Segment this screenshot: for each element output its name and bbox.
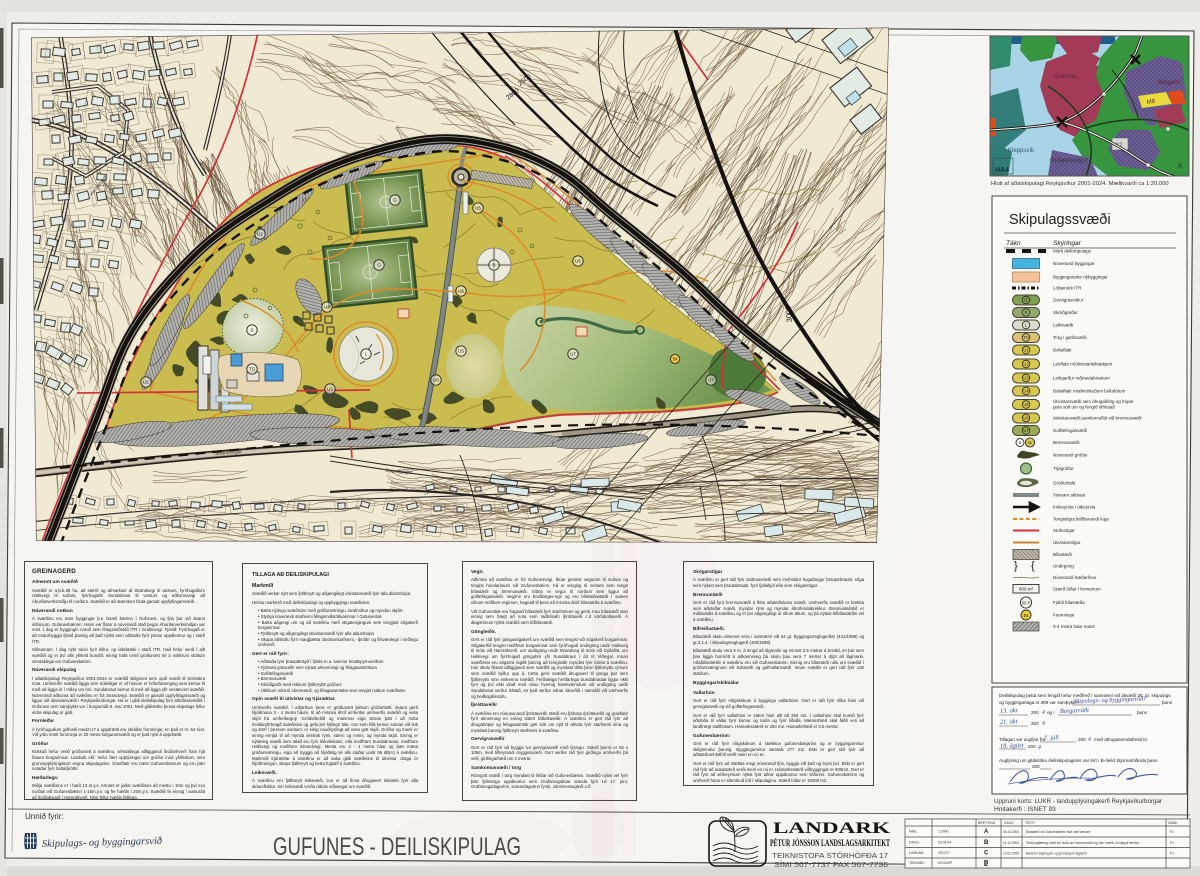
svg-text:200: 200 — [1032, 764, 1040, 769]
svg-text:B: B — [984, 840, 989, 846]
svg-text:SAMÞ: SAMÞ — [1168, 821, 1178, 825]
svg-text:Vistvæn akbraut: Vistvæn akbraut — [1053, 493, 1086, 498]
svg-text:{: { — [1031, 560, 1035, 572]
svg-text:Gufunesvegur: Gufunesvegur — [1050, 158, 1088, 164]
svg-text:G: G — [393, 198, 397, 203]
svg-text:Hluti af aðalskipulagi Reykjav: Hluti af aðalskipulagi Reykjavíkur 2001-… — [991, 180, 1169, 187]
svg-text:Útivistarstígur: Útivistarstígur — [1053, 539, 1081, 545]
svg-text:Byggingareitur nýbyggingar: Byggingareitur nýbyggingar — [1053, 275, 1108, 280]
svg-text:U2: U2 — [257, 232, 263, 237]
svg-text:}: } — [1014, 560, 1018, 572]
svg-text:U7: U7 — [1023, 428, 1029, 433]
svg-text:U5: U5 — [1023, 402, 1029, 407]
svg-text:ÞRJ/ASP: ÞRJ/ASP — [938, 861, 953, 865]
svg-text:Fjöldi bílastæða: Fjöldi bílastæða — [1053, 599, 1085, 605]
svg-text:U6: U6 — [433, 378, 439, 383]
svg-text:4: 4 — [1042, 720, 1045, 727]
svg-text:útivistarsvæði,samkomuflöt við: útivistarsvæði,samkomuflöt við brennusvæ… — [1053, 415, 1142, 421]
svg-text:VRJ,PJ: VRJ,PJ — [938, 851, 950, 855]
svg-text:Hnitakerfi : ISNET 93: Hnitakerfi : ISNET 93 — [994, 806, 1056, 813]
svg-text:A: A — [984, 829, 989, 835]
svg-text:SÍMI 567-7737 FAX 567-7736: SÍMI 567-7737 FAX 567-7736 — [774, 860, 888, 869]
svg-text:U4: U4 — [1023, 389, 1029, 394]
svg-text:3000: 3000 — [783, 305, 794, 323]
svg-text:TG: TG — [249, 367, 256, 372]
svg-text:06.10.2004: 06.10.2004 — [1003, 830, 1019, 834]
svg-text:13. okt: 13. okt — [1000, 707, 1018, 715]
svg-text:10.02.2005: 10.02.2005 — [1003, 851, 1019, 855]
svg-text:S: S — [1025, 310, 1028, 315]
svg-text:Mörk deiliskipulags: Mörk deiliskipulags — [1053, 249, 1092, 254]
svg-text:PÉTUR JÓNSSON LANDSLAGSARKITEK: PÉTUR JÓNSSON LANDSLAGSARKITEKT — [770, 837, 890, 849]
svg-text:Gróðurbelti: Gróðurbelti — [1053, 480, 1075, 486]
svg-text:4: 4 — [1088, 736, 1091, 743]
svg-text:Borgarráði: Borgarráði — [1060, 707, 1089, 715]
svg-text:200: 200 — [1078, 737, 1086, 742]
svg-text:Skrúðgarður: Skrúðgarður — [1053, 309, 1078, 315]
svg-text:Núverandi gróður: Núverandi gróður — [1053, 452, 1088, 458]
svg-text:Unnið fyrir:: Unnið fyrir: — [25, 812, 64, 821]
svg-text:DAGS: DAGS — [1004, 821, 1014, 825]
svg-text:Gervigrasvöllur: Gervigrasvöllur — [1053, 298, 1084, 303]
svg-text:Torg / garðsvæði: Torg / garðsvæði — [1053, 334, 1087, 340]
svg-text:Boltaflatir m/afmörkuðum bolta: Boltaflatir m/afmörkuðum boltafötum — [1053, 388, 1126, 394]
svg-text:Tengistígur,leiðbenandi lega: Tengistígur,leiðbenandi lega — [1053, 516, 1109, 522]
svg-text:U2: U2 — [1023, 362, 1029, 367]
svg-text:Brennusvæði: Brennusvæði — [1053, 439, 1080, 445]
svg-text:54: 54 — [1024, 613, 1029, 618]
svg-text:Skipulagssvæði: Skipulagssvæði — [1009, 212, 1111, 228]
svg-text:P.J: P.J — [1170, 841, 1175, 845]
svg-text:01.12.2004: 01.12.2004 — [1003, 841, 1019, 845]
svg-text:U3: U3 — [1023, 376, 1029, 381]
svg-text:21. okt: 21. okt — [1000, 718, 1018, 726]
svg-text:Boltaflatir: Boltaflatir — [1053, 348, 1072, 353]
svg-text:Skýringar: Skýringar — [1053, 240, 1082, 247]
svg-text:TG: TG — [1023, 335, 1029, 340]
svg-text:U6: U6 — [458, 289, 464, 294]
svg-text:Innkeyrsla / útkeyrsla: Innkeyrsla / útkeyrsla — [1053, 505, 1096, 510]
svg-text:U3: U3 — [327, 387, 333, 392]
svg-text:þann: þann — [1162, 700, 1173, 705]
svg-text:HA4: HA4 — [995, 167, 1009, 174]
svg-text:og í: og í — [1047, 710, 1055, 715]
svg-text:54: 54 — [673, 357, 678, 362]
svg-text:200: 200 — [1028, 744, 1036, 749]
svg-text:með athugasemdafresti til: með athugasemdafresti til — [1094, 736, 1147, 742]
svg-text:S: S — [250, 328, 253, 333]
svg-text:og byggingarlaga nr.399 var sa: og byggingarlaga nr.399 var samþykkt í — [999, 700, 1080, 705]
svg-text:P.J: P.J — [1170, 851, 1175, 855]
svg-text:Undirgöng: Undirgöng — [1053, 564, 1074, 569]
svg-text:TEIKNAÐ:: TEIKNAÐ: — [909, 861, 925, 865]
svg-text:4: 4 — [1038, 744, 1041, 751]
svg-text:G: G — [377, 263, 381, 268]
svg-text:4: 4 — [1042, 709, 1045, 716]
svg-text:E: E — [984, 862, 988, 868]
svg-text:U1: U1 — [1023, 348, 1029, 353]
svg-text:Bílastæði: Bílastæði — [1053, 551, 1072, 557]
svg-text:Bætt inn skýringum og greinarg: Bætt inn skýringum og greinargerð lagfær… — [1026, 850, 1087, 855]
svg-text:Leirflatir m/útivistarleiktækj: Leirflatir m/útivistarleiktækjum — [1053, 362, 1113, 367]
svg-text:Bílastæði við Gufunesbæinn flu: Bílastæði við Gufunesbæinn flutt nær bæn… — [1026, 829, 1091, 834]
svg-text:U6: U6 — [1023, 416, 1029, 421]
svg-text:þann: þann — [1137, 710, 1148, 715]
svg-text:L: L — [365, 352, 368, 357]
svg-text:G: G — [1024, 298, 1027, 303]
svg-text:18. ágúst: 18. ágúst — [1000, 742, 1024, 750]
svg-text:HANNAÐ:: HANNAÐ: — [909, 851, 924, 855]
svg-text:C: C — [984, 850, 989, 856]
svg-text:00 P: 00 P — [1022, 600, 1031, 605]
svg-text:Uppruni korts: LUKR - landuppl: Uppruni korts: LUKR - landupplýsingakerf… — [994, 798, 1163, 805]
svg-text:3-4 metra háar manir: 3-4 metra háar manir — [1053, 624, 1096, 629]
svg-text:Borgarh.: Borgarh. — [1158, 80, 1181, 86]
svg-text:TEXTI: TEXTI — [1025, 821, 1035, 825]
svg-text:M8: M8 — [1146, 99, 1156, 106]
svg-text:GUFUNES - DEILISKIPULAG: GUFUNES - DEILISKIPULAG — [273, 833, 521, 861]
svg-text:1:2000: 1:2000 — [938, 830, 948, 834]
svg-text:Golfæfingasvæði: Golfæfingasvæði — [1053, 427, 1087, 433]
svg-text:BREYTING: BREYTING — [978, 821, 996, 825]
svg-text:Fornminjar: Fornminjar — [1053, 613, 1075, 618]
svg-text:200: 200 — [1031, 710, 1039, 715]
svg-text:K: K — [1178, 163, 1183, 170]
svg-text:Kleppsvík: Kleppsvík — [1008, 148, 1035, 154]
svg-text:B: B — [492, 263, 495, 268]
svg-text:Útivistarsvæði sem áhugafélög: Útivistarsvæði sem áhugafélög og hópar — [1053, 398, 1134, 404]
svg-text:MÆL:: MÆL: — [909, 830, 918, 834]
svg-text:Leiksvæði: Leiksvæði — [1053, 322, 1073, 328]
svg-text:Tákn: Tákn — [1006, 240, 1021, 247]
svg-text:U5: U5 — [575, 259, 581, 264]
svg-text:U4: U4 — [324, 305, 330, 310]
svg-text:geta sótt um og fengið úthluta: geta sótt um og fengið úthlutað — [1053, 404, 1115, 410]
svg-text:Stærð lóðar í fermetrum: Stærð lóðar í fermetrum — [1053, 586, 1101, 592]
svg-text:Leikgarður m/þrautabrautum: Leikgarður m/þrautabrautum — [1053, 375, 1110, 381]
svg-text:U7: U7 — [570, 352, 576, 357]
svg-text:U5: U5 — [475, 206, 481, 211]
svg-text:7. júlí: 7. júlí — [1044, 734, 1060, 742]
svg-text:03.06.04: 03.06.04 — [938, 841, 951, 845]
svg-text:Auglýsing um gildistöku deilis: Auglýsing um gildistöku deiliskipulagsin… — [999, 757, 1158, 763]
svg-text:Gufunes: Gufunes — [1055, 74, 1078, 80]
svg-text:Núverandi byggingar: Núverandi byggingar — [1053, 261, 1095, 266]
svg-text:U1: U1 — [143, 380, 149, 385]
svg-text:DAGS:: DAGS: — [909, 841, 920, 845]
svg-text:Lóðamörk ÍTR: Lóðamörk ÍTR — [1053, 285, 1082, 291]
svg-text:200: 200 — [1031, 721, 1039, 726]
svg-text:Stofnstígar: Stofnstígar — [1053, 528, 1075, 533]
svg-text:TEIKNISTOFA STÓRHÖFÐA 17: TEIKNISTOFA STÓRHÖFÐA 17 — [772, 851, 888, 860]
svg-text:U5: U5 — [458, 349, 464, 354]
svg-text:Núverandi hæðarlínur: Núverandi hæðarlínur — [1053, 574, 1097, 580]
svg-text:000 m²: 000 m² — [1019, 587, 1034, 592]
svg-text:Trjágróður: Trjágróður — [1053, 465, 1074, 471]
svg-text:U7: U7 — [708, 378, 714, 383]
svg-text:LANDARK: LANDARK — [773, 820, 891, 837]
svg-text:P.J: P.J — [1170, 830, 1175, 834]
svg-text:Texta lagfæring, bætt inn text: Texta lagfæring, bætt inn texta um brenn… — [1026, 840, 1140, 845]
